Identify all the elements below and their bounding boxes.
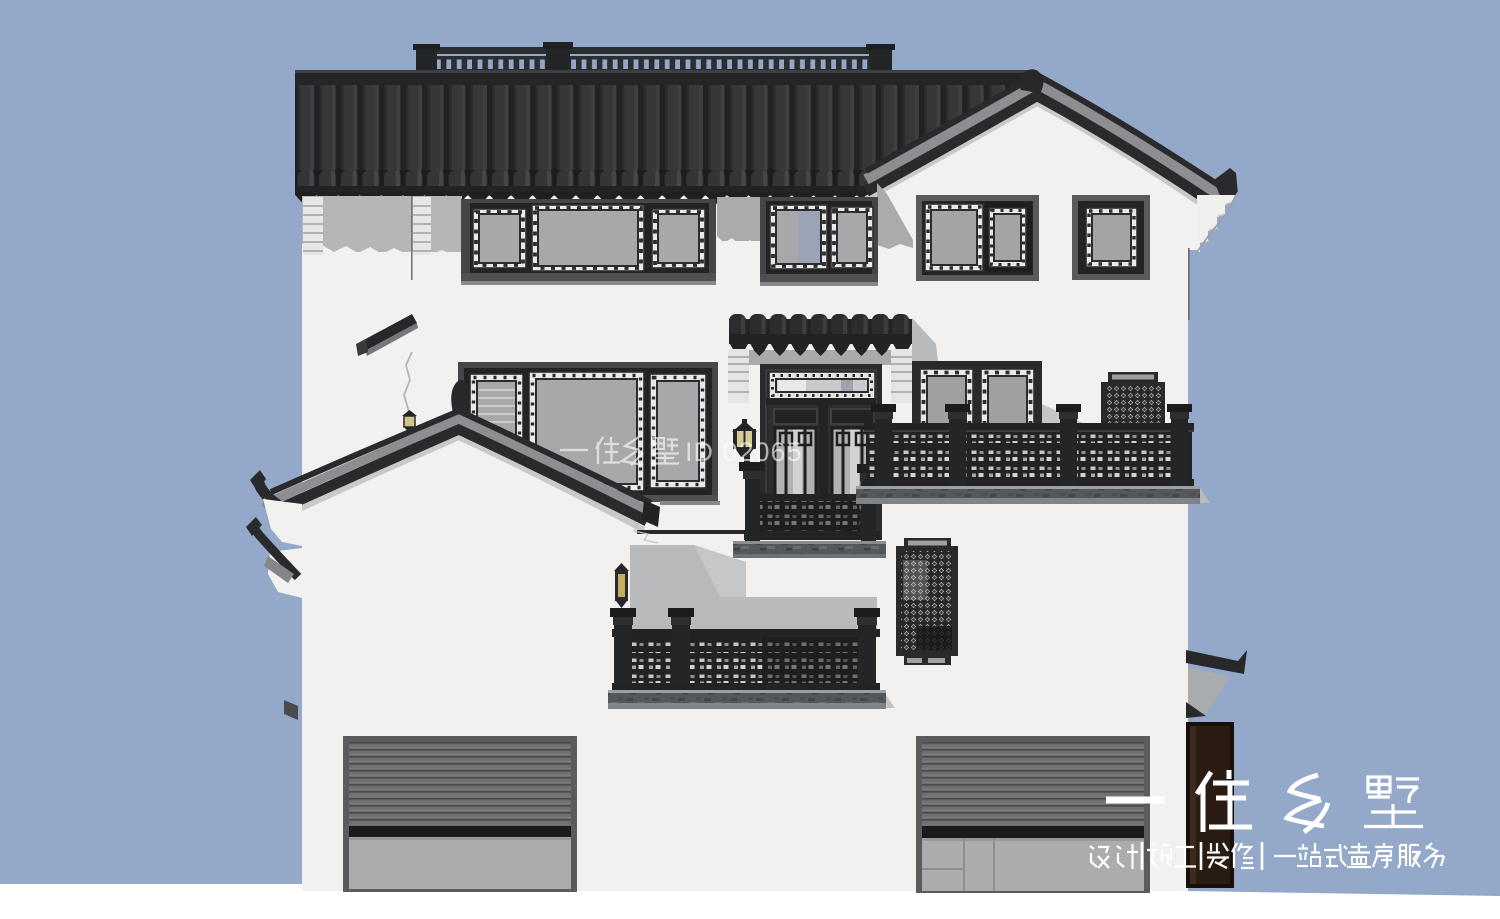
svg-text:ID 02065: ID 02065 <box>685 437 803 467</box>
